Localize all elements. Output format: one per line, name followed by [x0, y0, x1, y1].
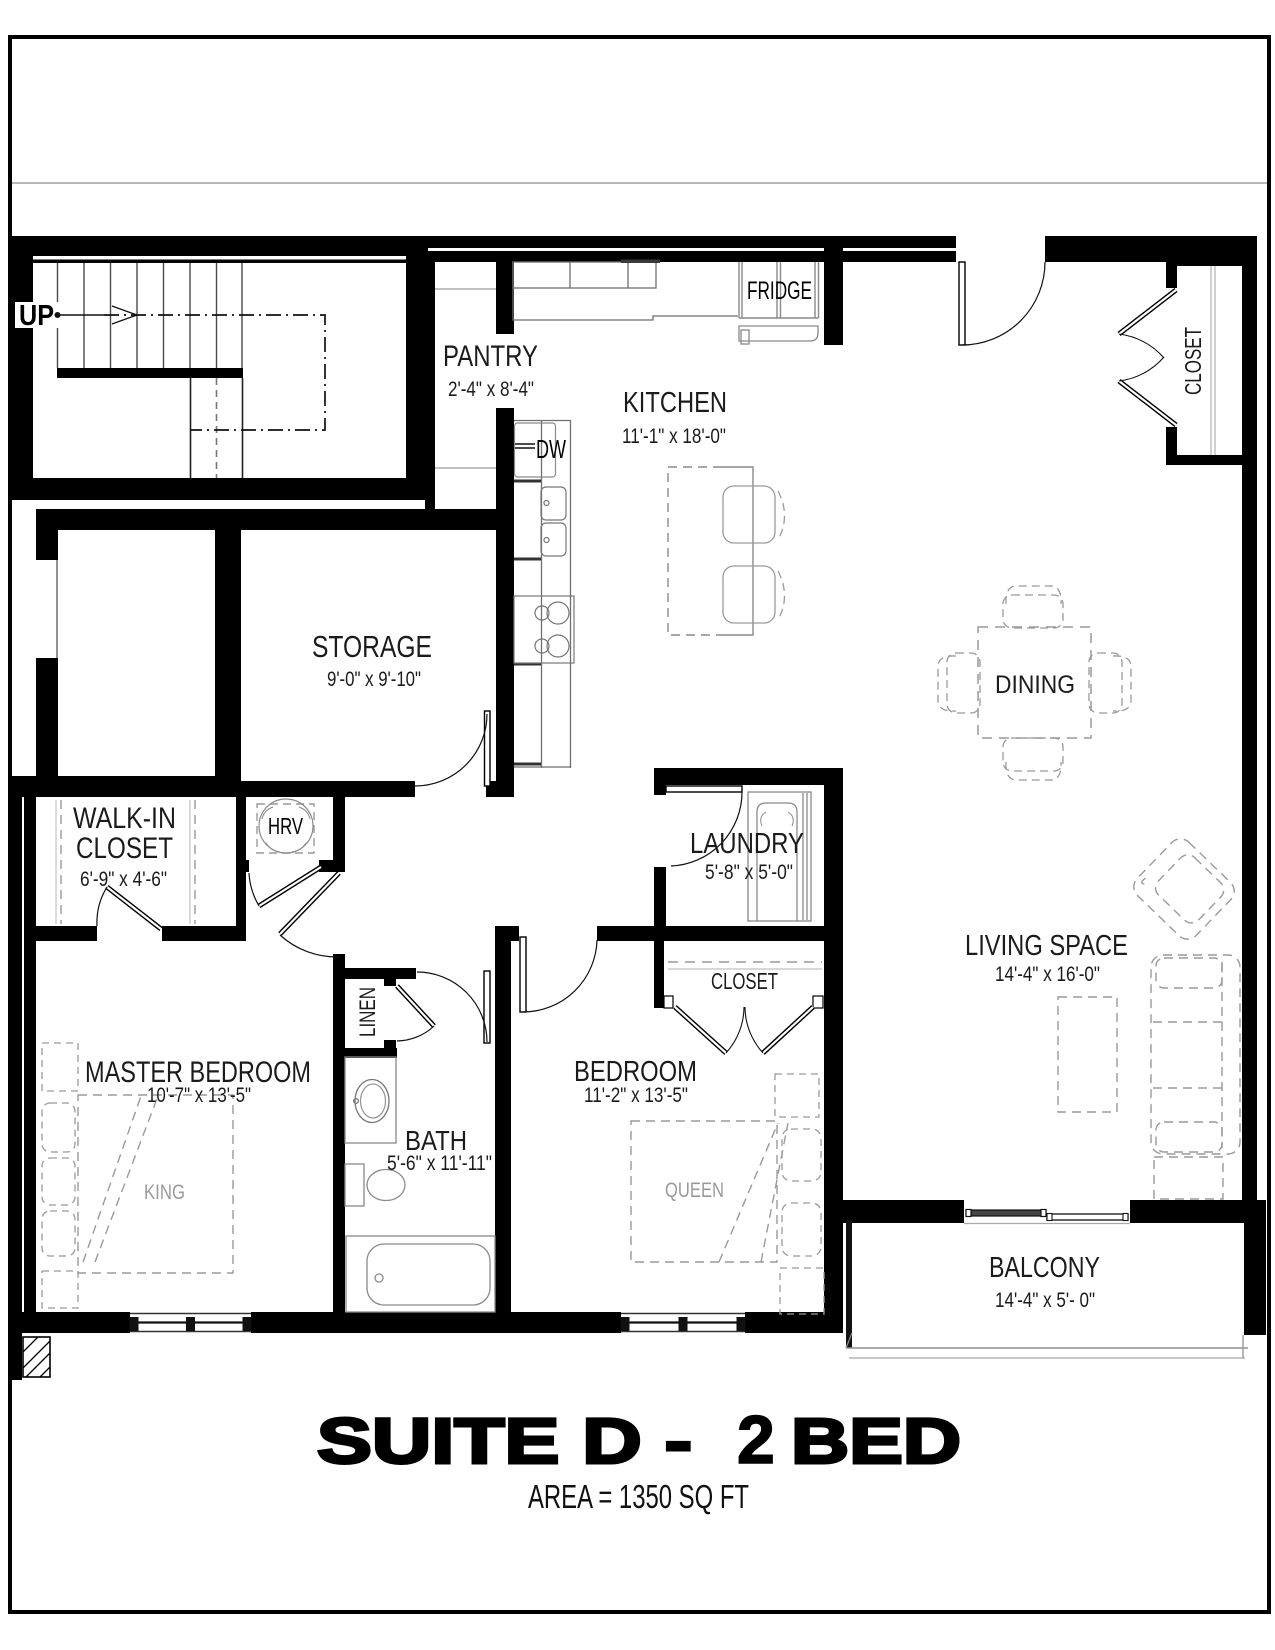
svg-text:11'-2" x 13'-5": 11'-2" x 13'-5": [584, 1084, 688, 1107]
svg-text:BED: BED: [791, 1405, 961, 1477]
svg-text:CLOSET: CLOSET: [76, 832, 173, 865]
svg-text:14'-4" x 16'-0": 14'-4" x 16'-0": [995, 963, 1100, 986]
svg-text:LIVING SPACE: LIVING SPACE: [965, 930, 1128, 962]
svg-text:LINEN: LINEN: [355, 987, 380, 1037]
svg-text:2'-4" x 8'-4": 2'-4" x 8'-4": [448, 378, 534, 401]
svg-text:AREA = 1350 SQ FT: AREA = 1350 SQ FT: [528, 1478, 749, 1515]
svg-text:PANTRY: PANTRY: [443, 340, 538, 373]
svg-text:FRIDGE: FRIDGE: [747, 277, 812, 305]
svg-text:DW: DW: [536, 434, 566, 464]
svg-text:SUITE D -: SUITE D -: [317, 1405, 692, 1477]
svg-text:BALCONY: BALCONY: [989, 1252, 1100, 1284]
svg-text:5'-8" x 5'-0": 5'-8" x 5'-0": [705, 861, 793, 884]
svg-text:6'-9" x 4'-6": 6'-9" x 4'-6": [80, 868, 167, 891]
svg-text:STORAGE: STORAGE: [312, 629, 432, 664]
svg-text:14'-4" x 5'- 0": 14'-4" x 5'- 0": [995, 1289, 1095, 1312]
svg-text:2: 2: [737, 1402, 775, 1478]
svg-text:CLOSET: CLOSET: [1180, 327, 1206, 395]
svg-text:DINING: DINING: [995, 671, 1075, 699]
svg-text:CLOSET: CLOSET: [711, 968, 778, 994]
svg-text:9'-0" x 9'-10": 9'-0" x 9'-10": [327, 668, 421, 691]
svg-text:10'-7" x 13'-5": 10'-7" x 13'-5": [147, 1084, 251, 1107]
svg-text:5'-6" x 11'-11": 5'-6" x 11'-11": [387, 1152, 492, 1175]
svg-text:WALK-IN: WALK-IN: [73, 802, 176, 835]
svg-text:QUEEN: QUEEN: [665, 1179, 724, 1202]
svg-text:KITCHEN: KITCHEN: [623, 387, 727, 419]
svg-text:LAUNDRY: LAUNDRY: [690, 828, 804, 860]
svg-text:UP: UP: [19, 300, 54, 332]
svg-text:11'-1" x 18'-0": 11'-1" x 18'-0": [622, 425, 726, 448]
svg-text:HRV: HRV: [268, 813, 303, 839]
svg-text:KING: KING: [144, 1181, 185, 1204]
